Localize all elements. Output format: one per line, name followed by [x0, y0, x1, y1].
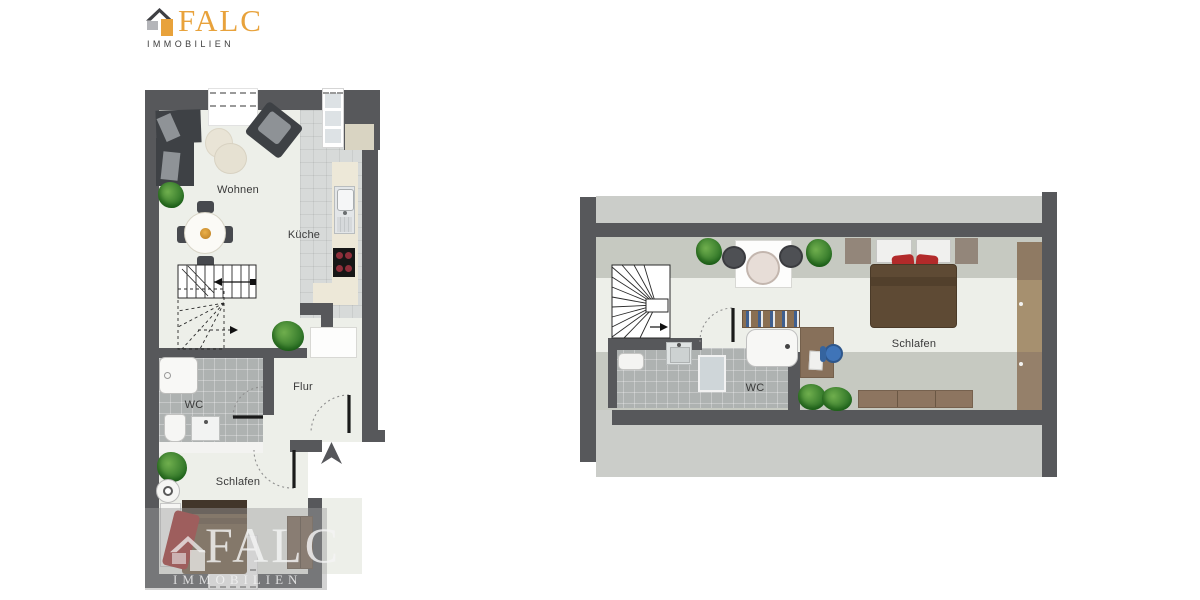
upper-wall-bottom — [612, 410, 1042, 425]
sink-basin — [670, 347, 690, 363]
room-label-schlafen-upper: Schlafen — [892, 338, 936, 350]
door-upper-wc — [696, 304, 738, 346]
upper-toilet — [618, 353, 644, 370]
lounge-chair — [722, 246, 746, 269]
plant — [696, 238, 722, 265]
bed-blanket — [870, 264, 957, 328]
bedside-table — [845, 238, 871, 264]
desk-chair — [824, 344, 843, 363]
upper-wall-top — [596, 223, 1042, 237]
round-table-upper — [746, 251, 780, 285]
plant — [822, 387, 852, 411]
sideboard — [858, 390, 973, 408]
staircase-upper — [610, 263, 672, 341]
tub-faucet — [785, 344, 790, 349]
upper-floor-plan: Schlafen WC — [0, 0, 1200, 600]
desk-chair-back — [820, 346, 826, 362]
wardrobe-upper — [1017, 242, 1042, 410]
plant — [806, 239, 832, 267]
sideboard-divider — [897, 391, 898, 407]
blanket-fold — [871, 277, 956, 286]
wardrobe-section — [1017, 352, 1042, 410]
upper-wc-wall-left — [608, 338, 617, 408]
upper-sink — [666, 342, 692, 365]
wardrobe-handle — [1019, 302, 1023, 306]
floor-plan-page: FALC IMMOBILIEN — [0, 0, 1200, 600]
room-label-wc-upper: WC — [746, 382, 765, 394]
roof-band-top — [596, 196, 1042, 223]
wardrobe-handle — [1019, 362, 1023, 366]
upper-shower — [698, 355, 726, 392]
sink-faucet — [677, 343, 681, 347]
wardrobe-section — [1017, 242, 1042, 280]
bed-upper — [870, 238, 957, 328]
upper-wall-left — [580, 197, 596, 462]
bedside-table — [955, 238, 978, 264]
upper-bathtub — [746, 329, 798, 367]
lounge-chair — [779, 245, 803, 268]
bookshelf — [742, 310, 800, 328]
upper-wall-right — [1042, 192, 1057, 477]
sideboard-divider — [935, 391, 936, 407]
